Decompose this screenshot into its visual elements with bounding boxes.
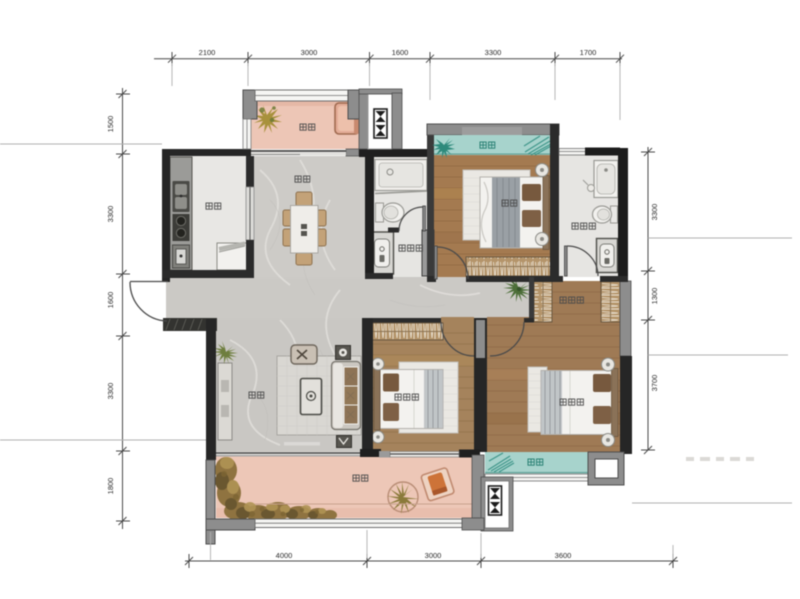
svg-text:1600: 1600 — [106, 292, 115, 309]
svg-text:3300: 3300 — [106, 383, 115, 400]
svg-text:1600: 1600 — [392, 48, 409, 57]
svg-text:4000: 4000 — [276, 551, 293, 560]
svg-text:1800: 1800 — [106, 478, 115, 495]
svg-text:3300: 3300 — [650, 204, 659, 221]
svg-text:1500: 1500 — [106, 116, 115, 133]
svg-text:3000: 3000 — [425, 551, 442, 560]
svg-text:3300: 3300 — [106, 206, 115, 223]
svg-text:3600: 3600 — [555, 551, 572, 560]
svg-text:1700: 1700 — [580, 48, 597, 57]
svg-text:2100: 2100 — [199, 48, 216, 57]
svg-text:1300: 1300 — [650, 288, 659, 305]
svg-text:3300: 3300 — [485, 48, 502, 57]
svg-text:3000: 3000 — [301, 48, 318, 57]
svg-text:3700: 3700 — [650, 375, 659, 392]
